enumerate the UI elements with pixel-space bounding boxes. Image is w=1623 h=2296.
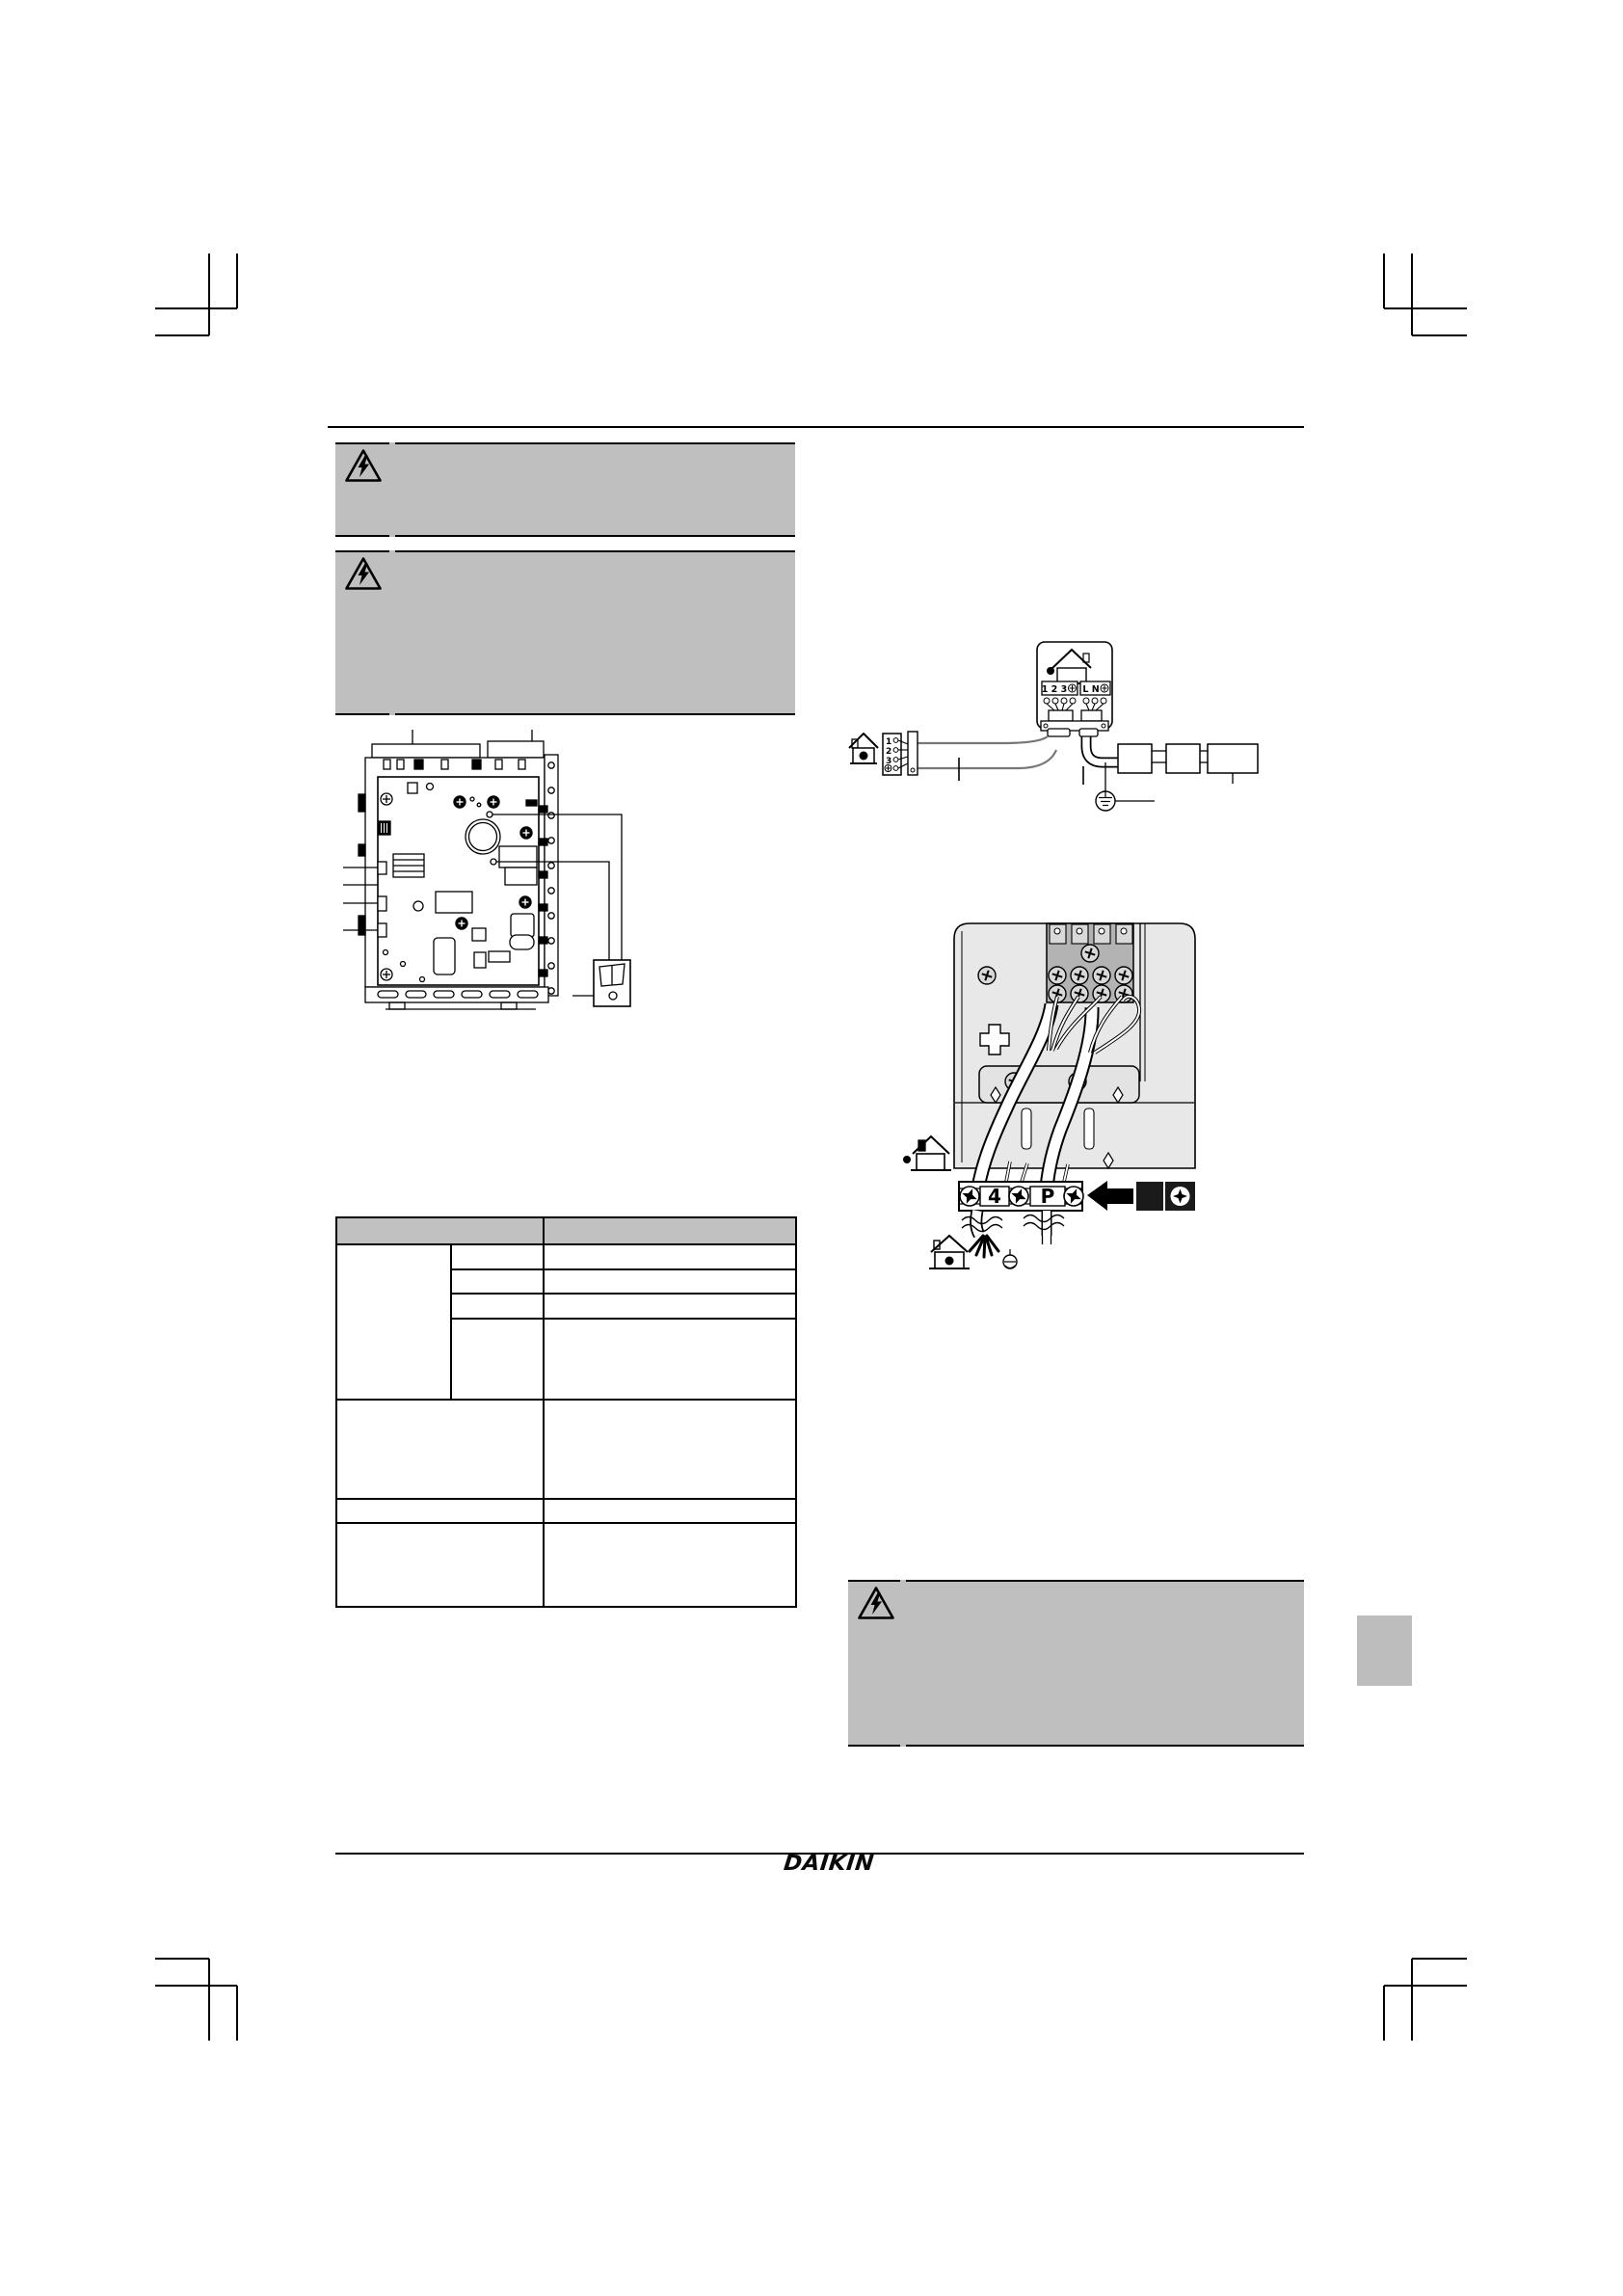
terminal-closeup-diagram: 4 P (894, 914, 1208, 1275)
table-header-cell (544, 1217, 796, 1244)
table-cell (336, 1400, 544, 1499)
house-icon (903, 1136, 951, 1170)
registration-mark-bottom-left (155, 1959, 237, 2041)
table-cell (544, 1319, 796, 1400)
connector (378, 896, 386, 911)
house-icon (849, 734, 878, 763)
screw-icon (978, 967, 996, 984)
cable-clamp-plate (979, 1066, 1139, 1103)
table-cell (451, 1244, 544, 1269)
power-terminal-labels: L N (1082, 684, 1099, 695)
table-header-cell (336, 1217, 544, 1244)
cable-slot (1022, 1108, 1031, 1149)
table-cell (544, 1294, 796, 1319)
electrical-hazard-icon (344, 448, 383, 483)
table-cell (451, 1294, 544, 1319)
screw-icon (1064, 1187, 1083, 1206)
screw-icon (1071, 985, 1088, 1002)
warning-box-border (848, 1745, 1304, 1747)
table-cell (544, 1269, 796, 1294)
interconnection-wire (918, 736, 1048, 743)
terminal-label: 2 (886, 747, 891, 757)
warning-box-border (335, 713, 795, 715)
cable-ends-below (962, 1211, 1064, 1268)
electrical-hazard-icon (344, 556, 383, 591)
terminal-label-p: P (1041, 1185, 1055, 1208)
screw-icon (1115, 967, 1132, 984)
registration-mark-top-left (155, 254, 237, 335)
interconnection-wire (918, 750, 1056, 768)
earth-icon (1003, 1249, 1017, 1268)
pcb (378, 777, 547, 985)
wiring-overview-diagram: 1 2 3 L N (837, 627, 1270, 819)
power-switch (572, 960, 630, 1006)
stripped-wires (970, 1236, 998, 1257)
table-cell (451, 1319, 544, 1400)
table-cell (451, 1269, 544, 1294)
earth-icon (885, 765, 891, 772)
screw-icon (381, 969, 392, 980)
side-index-tab (1357, 1615, 1412, 1686)
screw-icon (960, 1187, 979, 1206)
control-box-diagram (328, 728, 646, 1017)
table-cell (544, 1499, 796, 1523)
registration-mark-top-right (1384, 254, 1467, 335)
left-arrow-icon (1087, 1181, 1133, 1211)
screw-icon (1093, 967, 1110, 984)
terminal-block (1047, 923, 1133, 1002)
screw-icon (1009, 1187, 1028, 1206)
manual-page: 1 2 3 L N (0, 0, 1623, 2296)
test-point (491, 859, 496, 865)
test-point (487, 812, 492, 817)
registration-mark-bottom-right (1384, 1959, 1467, 2041)
connector (378, 923, 386, 937)
warning-box-border (335, 442, 795, 444)
registration-marks (0, 0, 1623, 2296)
warning-box-border (335, 535, 795, 537)
connector (379, 821, 390, 835)
indoor-unit-box: 1 2 3 L N (1037, 642, 1112, 736)
screw-icon (1081, 945, 1099, 962)
table-cell (544, 1523, 796, 1607)
table-cell (544, 1244, 796, 1269)
section-divider (328, 426, 1304, 428)
terminal-label: 1 (886, 737, 891, 747)
connector (378, 862, 386, 874)
warning-box-3 (848, 1580, 1304, 1747)
screw-icon (1071, 967, 1088, 984)
warning-box-2 (335, 550, 795, 715)
spec-table (335, 1216, 797, 1608)
indoor-terminal-labels: 1 2 3 (1042, 684, 1067, 695)
table-cell (544, 1400, 796, 1499)
phillips-bit-icon (1165, 1182, 1195, 1211)
warning-box-1 (335, 442, 795, 537)
cable-slot (1084, 1108, 1094, 1149)
terminal-strip-4p: 4 P (959, 1182, 1083, 1211)
tool-swatch (1136, 1182, 1163, 1211)
house-icon (929, 1236, 970, 1268)
screw-icon (381, 793, 392, 805)
table-cell (336, 1499, 544, 1523)
warning-box-border (848, 1580, 1304, 1582)
supply-chain-boxes (1118, 744, 1258, 784)
remote-terminal-strip: 1 2 3 (883, 732, 918, 775)
table-cell (336, 1244, 451, 1400)
terminal-label-4: 4 (988, 1185, 1001, 1208)
table-cell (336, 1523, 544, 1607)
daikin-logo: DAIKIN (776, 1854, 882, 1875)
warning-box-border (335, 550, 795, 552)
electrical-hazard-icon (857, 1586, 895, 1620)
screw-icon (1049, 967, 1066, 984)
